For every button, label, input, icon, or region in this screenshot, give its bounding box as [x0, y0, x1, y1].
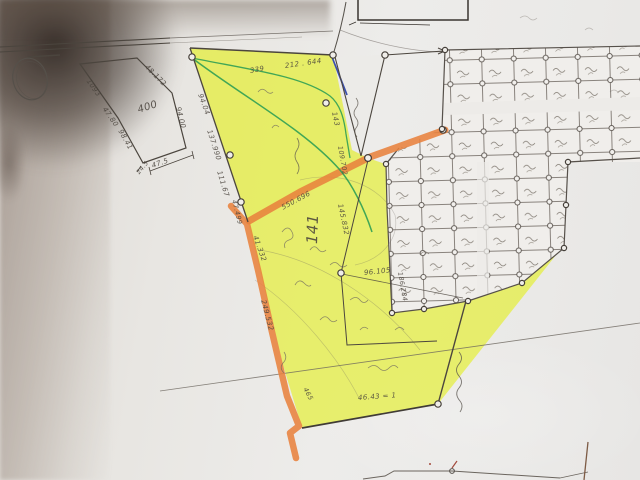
annotation-label: 24.5 — [135, 160, 150, 176]
annotation-label: 143 — [330, 111, 341, 127]
annotation-label: 47.5 — [151, 157, 170, 170]
annotation-label: 1093 — [85, 78, 103, 98]
annotation-label: 47.80 — [101, 106, 120, 129]
annotation-label: 47.499 — [230, 199, 244, 225]
annotation-label: 137.990 — [205, 129, 222, 162]
annotation-label: 41.332 — [251, 235, 268, 263]
annotation-label: 46.43 = 1 — [358, 391, 397, 402]
annotation-label: 249.532 — [259, 299, 275, 332]
annotation-label: 465 — [301, 386, 314, 402]
annotation-label: 111.67 — [215, 170, 231, 198]
annotations-layer: 109347.8048.17240094.0098.4147.524.53392… — [0, 0, 640, 480]
annotation-label: 94.04 — [196, 93, 211, 116]
annotation-label: 186.284 — [396, 271, 409, 302]
annotation-label: 109.702 — [336, 145, 349, 176]
annotation-label: 145.832 — [336, 203, 350, 236]
annotation-label: 400 — [136, 99, 159, 116]
annotation-label: 96.105 — [364, 266, 392, 277]
annotation-label: 141 — [303, 214, 322, 244]
annotation-label: 212 . 644 — [284, 57, 322, 70]
annotation-label: 339 — [249, 65, 265, 75]
photographed-map-sheet: 109347.8048.17240094.0098.4147.524.53392… — [0, 0, 640, 480]
annotation-label: 98.41 — [117, 128, 135, 151]
annotation-label: 94.00 — [174, 106, 187, 129]
annotation-label: 48.172 — [143, 63, 168, 88]
annotation-label: 550.696 — [280, 190, 312, 212]
